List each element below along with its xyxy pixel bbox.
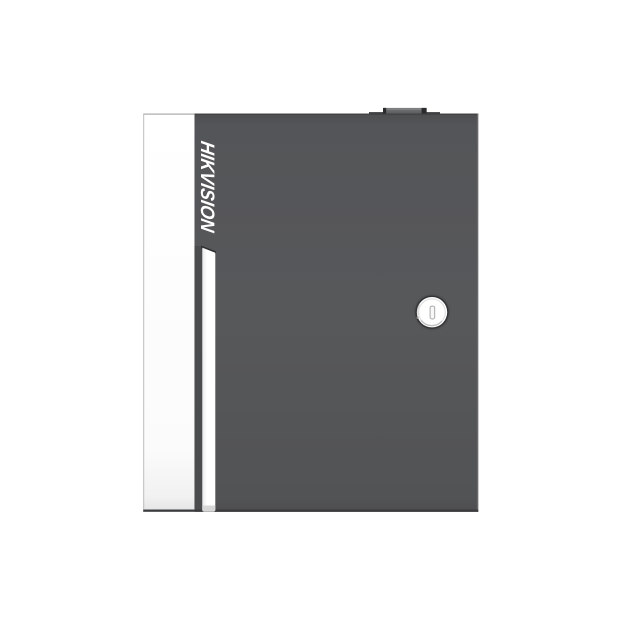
svg-text:HIKVISION: HIKVISION: [196, 139, 218, 234]
